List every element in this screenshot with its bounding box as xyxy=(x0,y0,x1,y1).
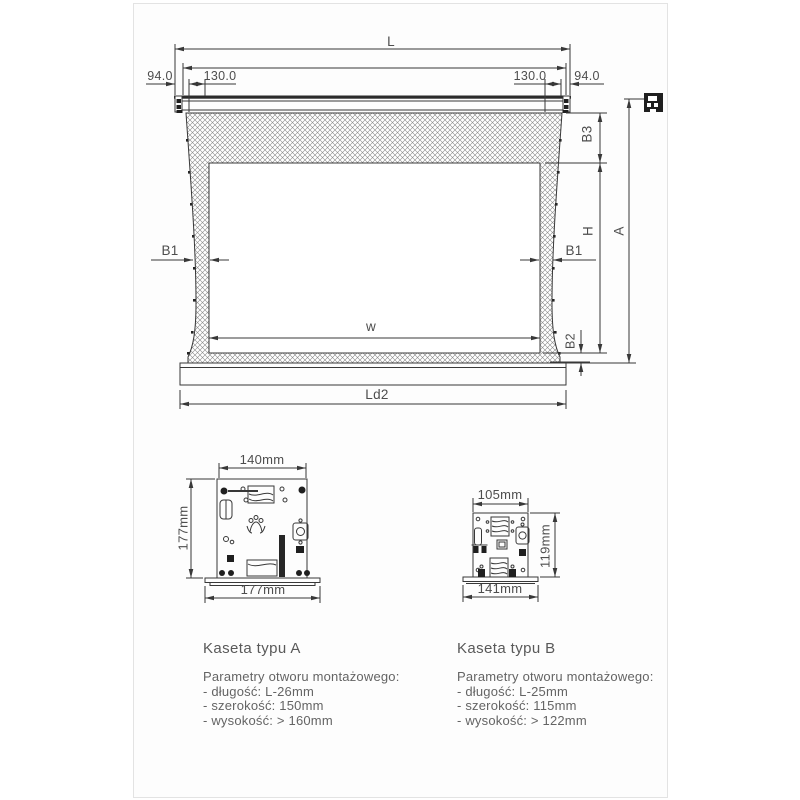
label-L: L xyxy=(387,34,395,49)
cassette-a-param-width: - szerokość: 150mm xyxy=(203,699,433,714)
cassette-side-profile-icon xyxy=(644,93,663,112)
label-H: H xyxy=(581,226,596,236)
label-B1-right: B1 xyxy=(565,243,582,258)
cassette-housing xyxy=(174,96,571,114)
cassette-a-params-heading: Parametry otworu montażowego: xyxy=(203,670,433,685)
cassette-b-params-heading: Parametry otworu montażowego: xyxy=(457,670,687,685)
cassette-a-param-height: - wysokość: > 160mm xyxy=(203,714,433,729)
bottom-slat xyxy=(180,363,566,385)
label-94-left: 94.0 xyxy=(147,69,173,83)
label-Ld2: Ld2 xyxy=(365,387,388,402)
cassette-a-title: Kaseta typu A xyxy=(203,640,433,657)
label-130-left: 130.0 xyxy=(204,69,237,83)
cassette-b-specs: Kaseta typu B Parametry otworu montażowe… xyxy=(457,640,687,728)
cassette-b-title: Kaseta typu B xyxy=(457,640,687,657)
label-94-right: 94.0 xyxy=(574,69,600,83)
label-w: w xyxy=(365,319,376,334)
label-b-top-mm: 105mm xyxy=(478,487,523,502)
label-B1-left: B1 xyxy=(161,243,178,258)
label-a-top-mm: 140mm xyxy=(240,452,285,467)
label-b-bottom-mm: 141mm xyxy=(478,581,523,596)
label-a-side-mm: 177mm xyxy=(175,506,190,551)
label-a-bottom-mm: 177mm xyxy=(241,582,286,597)
label-B2: B2 xyxy=(563,333,577,349)
label-B3: B3 xyxy=(580,125,595,142)
cassette-a-specs: Kaseta typu A Parametry otworu montażowe… xyxy=(203,640,433,728)
screen-spec-sheet: L 94.0 130.0 130.0 94.0 B3 H A B1 B1 w B… xyxy=(0,0,800,800)
label-A: A xyxy=(612,226,627,235)
label-b-side-mm: 119mm xyxy=(537,524,552,568)
cassette-b-param-length: - długość: L-25mm xyxy=(457,685,687,700)
cassette-a-param-length: - długość: L-26mm xyxy=(203,685,433,700)
cassette-b-param-height: - wysokość: > 122mm xyxy=(457,714,687,729)
label-130-right: 130.0 xyxy=(514,69,547,83)
cassette-b-param-width: - szerokość: 115mm xyxy=(457,699,687,714)
